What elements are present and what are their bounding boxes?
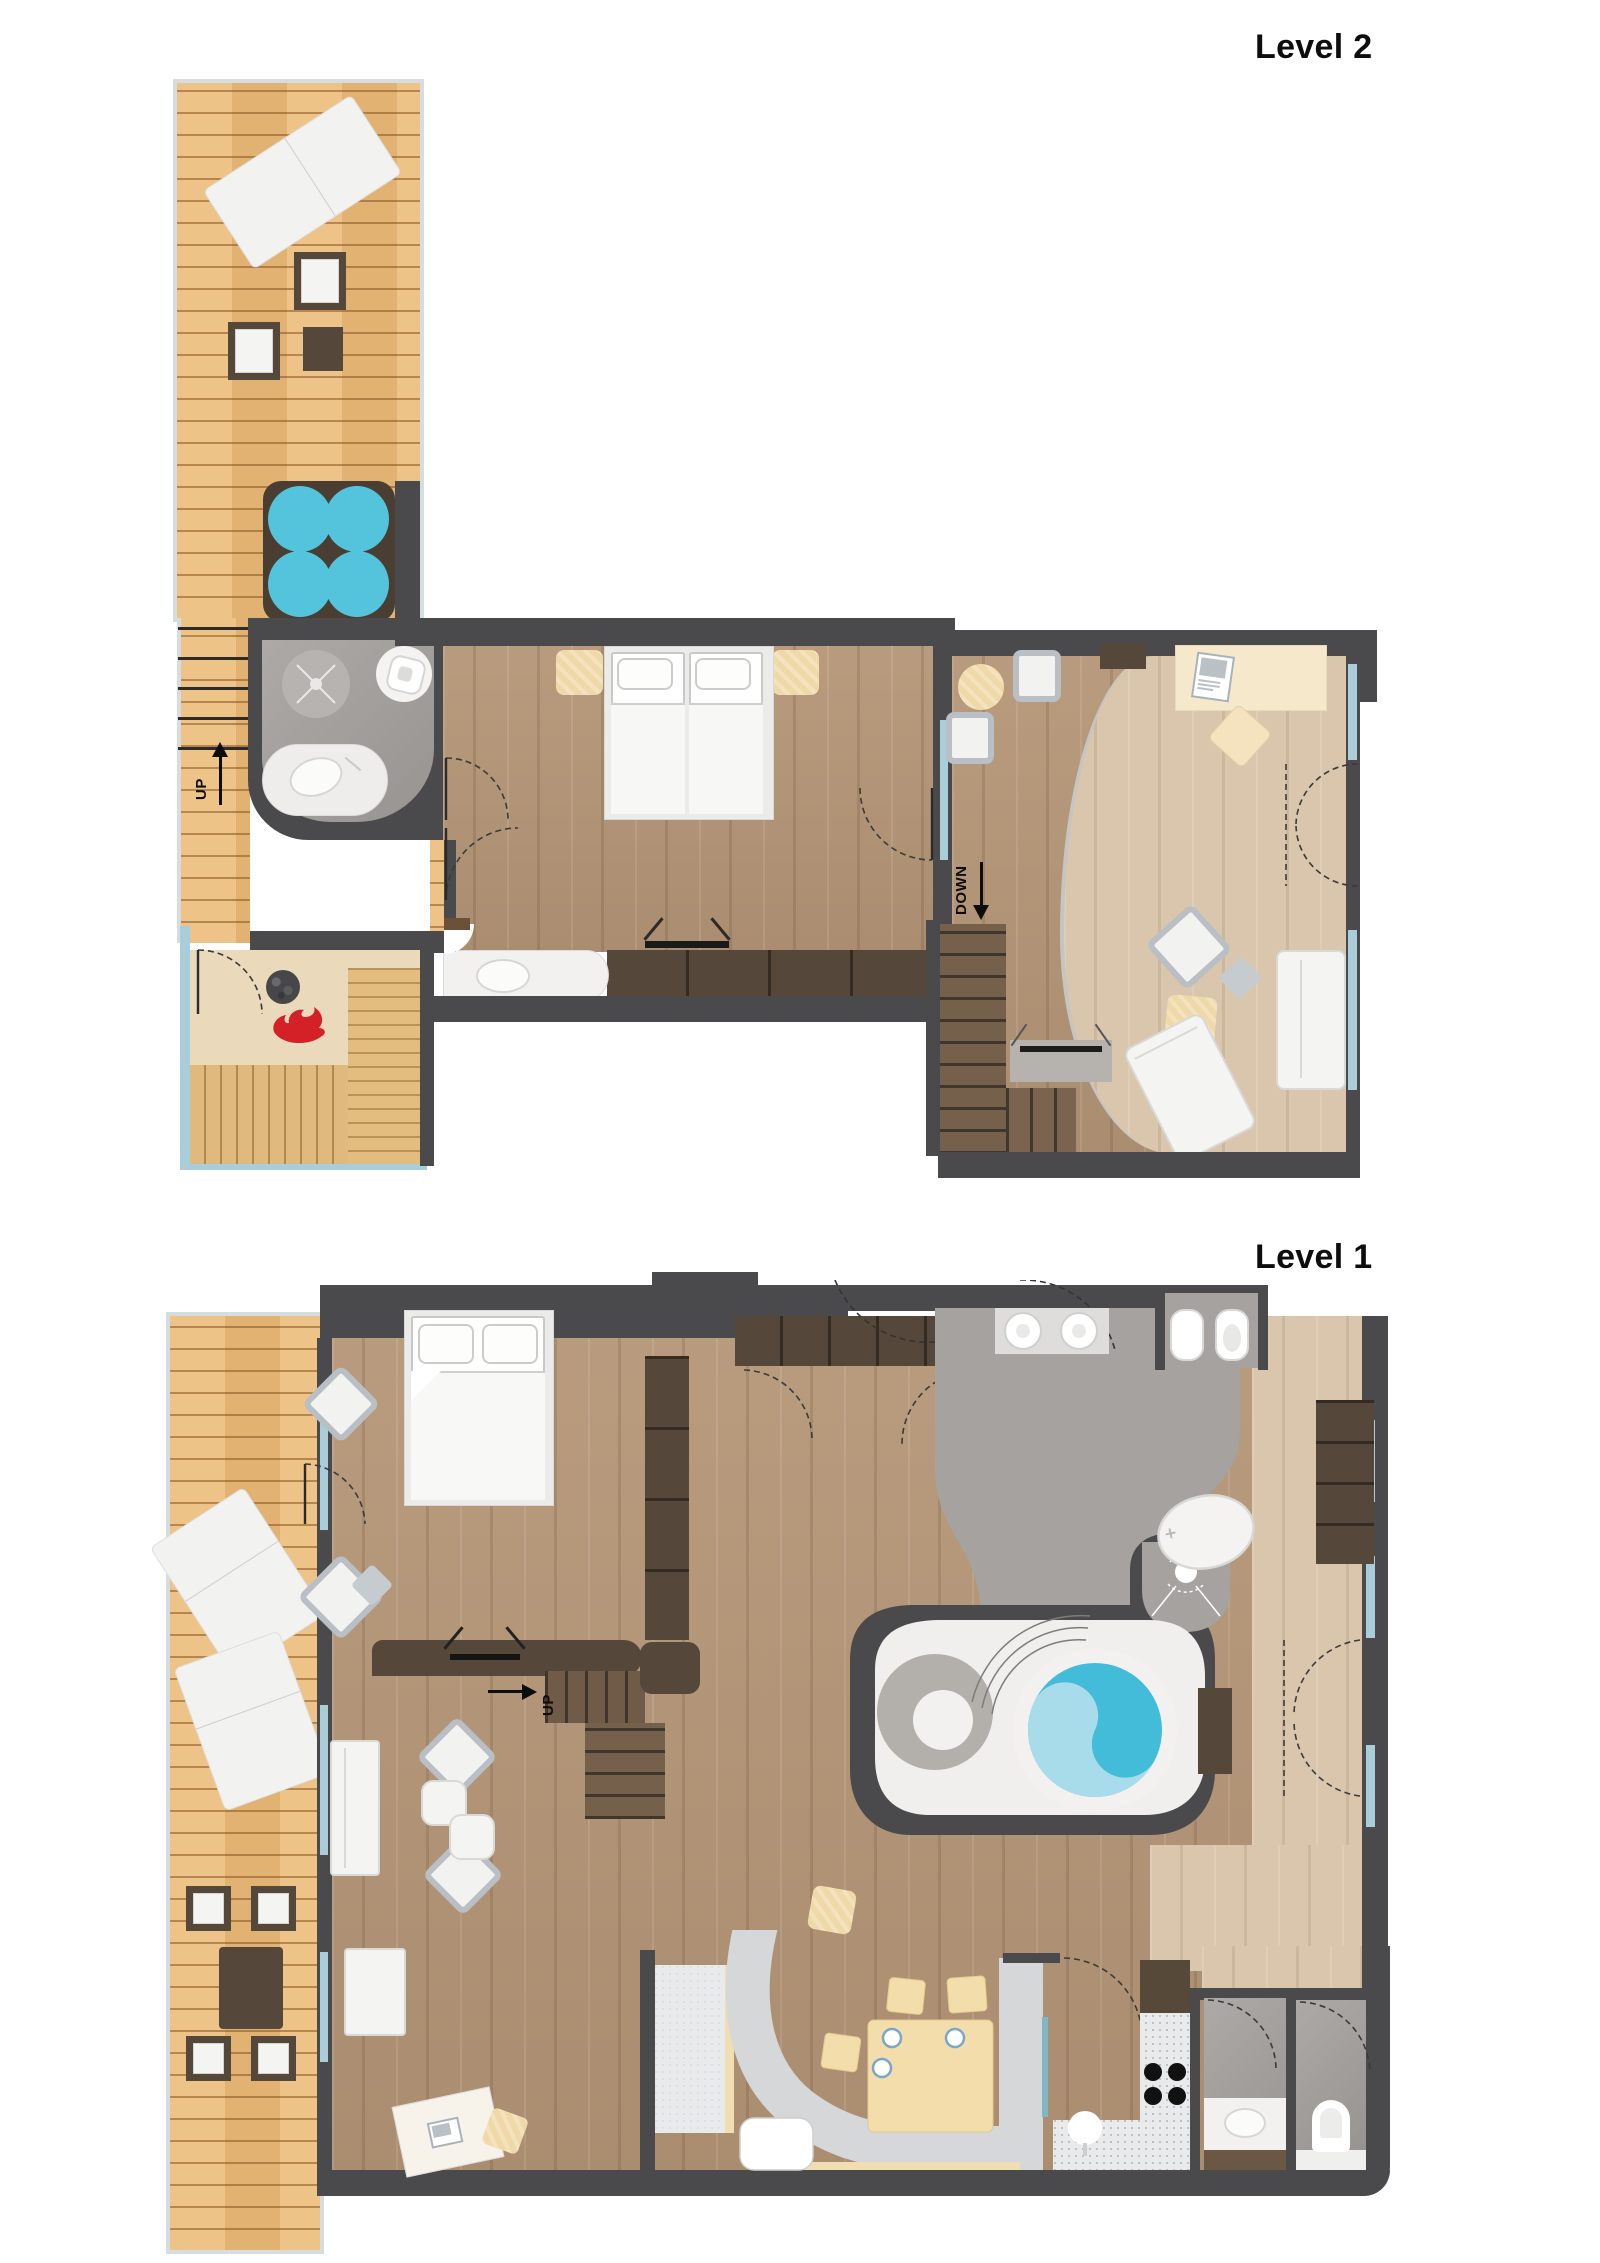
level-2-title: Level 2: [1255, 28, 1372, 67]
sauna-glass-left: [180, 926, 190, 1170]
stool-l1: [886, 1977, 925, 2015]
window-right-2-l1: [1366, 1556, 1375, 1638]
glass-partition-l1: [1042, 2017, 1048, 2117]
tv-icon: [1020, 1046, 1102, 1052]
bedroom-top-wall-l2: [395, 618, 955, 646]
stool-l1: [947, 1976, 987, 2014]
bedroom-closet-l1: [645, 1356, 689, 1640]
powder-room-1-mat-l1: [1204, 2150, 1286, 2170]
fridge-l1: [1140, 1960, 1190, 2013]
stair-cabinet-l1: [640, 1642, 700, 1694]
lounge-bottom-wall-l2: [938, 1152, 1360, 1178]
door-swing-icon: [742, 1368, 814, 1440]
right-arrow-icon: [488, 1690, 524, 1693]
bedside-rug-left-l2: [556, 650, 603, 695]
spa-bench-l1: [1198, 1688, 1232, 1774]
sauna-bench-right: [348, 968, 420, 1164]
bench-l1: [344, 1948, 406, 2036]
terrace-chair-l1: [186, 2036, 231, 2081]
terrace-table-l1: [219, 1947, 283, 2029]
sink-icon: [1224, 2108, 1266, 2138]
powder-room-2-floor-strip-l1: [1296, 2150, 1366, 2170]
flame-icon: [270, 1006, 326, 1046]
terrace-chair-l1: [251, 1886, 296, 1931]
up-arrow-head-l2: [212, 742, 228, 757]
terrace-chair-1-l2: [294, 252, 346, 310]
tv-stand-l2: [1010, 1040, 1112, 1082]
sauna-right-wall: [420, 950, 434, 1166]
door-leaf-l2: [444, 918, 470, 930]
door-swing-icon: [444, 756, 510, 822]
sofa-l2: [1276, 950, 1346, 1090]
bedroom-cabinets-l2: [607, 950, 933, 998]
toilet-icon: [376, 646, 432, 702]
tv-icon: [450, 1654, 520, 1660]
outdoor-stairs-l2: [178, 600, 250, 750]
lounge-window-1-l2: [1348, 664, 1357, 760]
door-swing-icon: [303, 1462, 367, 1526]
bedroom-vanity-l2: [443, 950, 609, 1000]
up-label-l1: UP: [540, 1694, 557, 1716]
window-right-3-l1: [1366, 1745, 1375, 1827]
floor-pouf-l1: [807, 1885, 858, 1936]
terrace-side-table-l2: [303, 327, 343, 371]
dining-table-l1: [868, 2020, 993, 2132]
door-swing-icon: [835, 1280, 935, 1342]
tv-icon: [645, 941, 729, 948]
down-label-l2: DOWN: [953, 866, 970, 916]
laptop-icon: [1191, 652, 1235, 703]
down-arrow-head-l2: [973, 905, 989, 920]
desk-l2: [1175, 645, 1327, 711]
hot-tub-icon: [263, 481, 395, 622]
terrace-chair-l1: [251, 2036, 296, 2081]
down-arrow-icon: [980, 862, 983, 910]
level-1-title: Level 1: [1255, 1238, 1372, 1277]
toilet-icon: [1171, 1310, 1203, 1360]
coffee-table-2-l1: [449, 1814, 495, 1860]
chair-a-l2: [1013, 650, 1061, 702]
door-swing-icon: [1298, 2000, 1372, 2074]
kitchen-counter-white-l1: [740, 2118, 813, 2170]
bedroom-bottom-wall-l2: [430, 996, 952, 1022]
stair-wall-l2: [926, 920, 940, 1156]
door-swing-icon: [858, 786, 934, 862]
toilet-icon: [1312, 2100, 1350, 2152]
laptop-icon: [427, 2117, 464, 2149]
round-table-l2: [958, 664, 1004, 710]
stool-l1: [821, 2033, 862, 2073]
wall-cabinet-l2: [1100, 643, 1146, 669]
kitchen-dining-area-l1: [640, 1930, 1200, 2175]
twin-bed-l2: [604, 646, 774, 820]
sofa-l1: [330, 1740, 380, 1876]
stairs-up-flight-l1: [585, 1723, 665, 1819]
wall-hot-tub-side: [395, 481, 420, 622]
bathroom-spa-area-l1: [830, 1280, 1270, 1850]
door-swing-icon: [196, 948, 264, 1016]
up-arrow-icon: [219, 755, 222, 805]
terrace-chair-2-l2: [228, 322, 280, 380]
sauna-stove: [266, 970, 300, 1004]
door-swing-icon: [444, 826, 520, 902]
up-arrow-head-l1: [522, 1684, 537, 1700]
bedside-rug-right-l2: [772, 650, 819, 695]
double-bed-l1: [404, 1310, 554, 1506]
floor-plan-page: Level 2 UP: [0, 0, 1600, 2263]
stairs-down-l2: [940, 924, 1006, 1154]
shower-icon: [282, 650, 350, 718]
double-door-swing-icon: [1282, 1638, 1362, 1798]
chair-b-l2: [946, 712, 994, 764]
double-door-swing-icon: [1284, 762, 1360, 888]
lounge-window-2-l2: [1348, 930, 1357, 1090]
sauna-bench-bottom: [190, 1065, 350, 1164]
terrace-chair-l1: [186, 1886, 231, 1931]
door-swing-icon: [1206, 1998, 1278, 2070]
powder-room-1-vanity-l1: [1204, 2098, 1286, 2150]
window-left-2-l1: [320, 1705, 328, 1855]
stairs-up-run-l1: [545, 1671, 645, 1723]
up-label-l2: UP: [193, 778, 210, 800]
stairs-turn-l2: [1006, 1088, 1076, 1154]
vanity-l2: [262, 744, 388, 816]
right-room-wardrobe-l1: [1316, 1400, 1374, 1564]
window-left-3-l1: [320, 1952, 328, 2062]
powder-room-divider-wall-l1: [1286, 1998, 1296, 2172]
